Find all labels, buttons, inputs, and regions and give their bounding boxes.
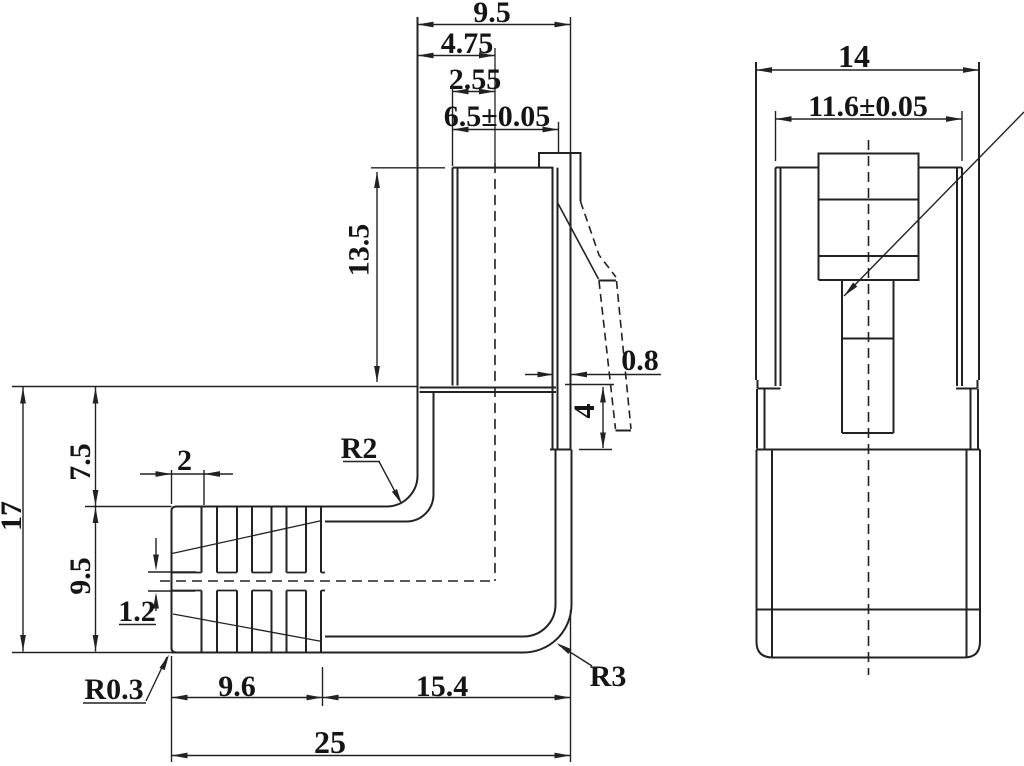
- svg-text:1.2: 1.2: [118, 595, 156, 628]
- svg-text:2.55: 2.55: [449, 63, 502, 96]
- svg-text:R3: R3: [590, 660, 627, 693]
- svg-text:15.4: 15.4: [416, 670, 469, 703]
- svg-text:R2: R2: [341, 432, 378, 465]
- svg-text:4: 4: [568, 404, 601, 419]
- svg-text:7.5: 7.5: [64, 443, 97, 481]
- svg-text:4.75: 4.75: [441, 27, 494, 60]
- svg-text:R0.3: R0.3: [84, 673, 143, 706]
- svg-text:9.5: 9.5: [64, 557, 97, 595]
- svg-text:11.6±0.05: 11.6±0.05: [808, 90, 928, 123]
- svg-text:6.5±0.05: 6.5±0.05: [444, 100, 550, 133]
- svg-text:13.5: 13.5: [343, 224, 376, 277]
- svg-text:2: 2: [177, 444, 192, 477]
- svg-text:17: 17: [0, 501, 28, 531]
- svg-text:9.6: 9.6: [218, 670, 256, 703]
- svg-text:0.8: 0.8: [621, 344, 659, 377]
- svg-text:14: 14: [838, 38, 870, 74]
- svg-text:25: 25: [314, 724, 346, 760]
- svg-text:9.5: 9.5: [473, 0, 511, 29]
